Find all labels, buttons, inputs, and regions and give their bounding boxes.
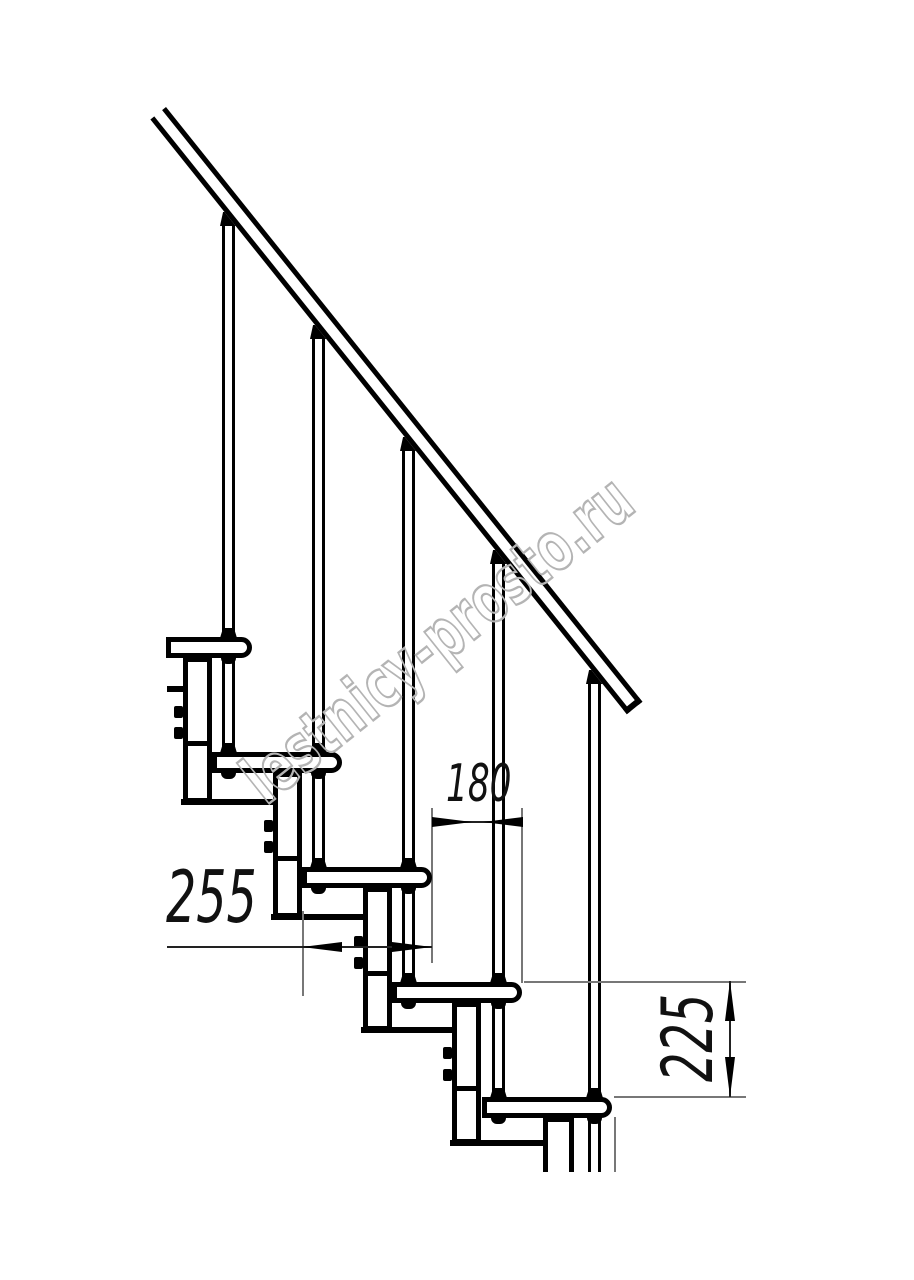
ext-line-255-left (302, 911, 304, 996)
ext-line-180-right (521, 808, 523, 983)
baluster-1-lower (222, 657, 235, 752)
tread-1-cutoff (166, 637, 252, 658)
module-1-flange (181, 799, 275, 805)
module-4-flange (450, 1140, 545, 1146)
baluster-5-lower (588, 1117, 601, 1172)
baluster-3-lower (402, 887, 415, 982)
module-3-flange (361, 1027, 454, 1033)
baluster-2-upper (312, 335, 325, 752)
tread-2 (212, 752, 342, 773)
dim-180-arrow-right (483, 817, 523, 827)
module-1-seam (183, 741, 212, 746)
module-3-seam (363, 971, 392, 976)
stringer-module-4 (452, 1002, 481, 1144)
tread-2-nut-a (221, 771, 236, 779)
tread-5 (482, 1097, 612, 1118)
module-2-flange (271, 914, 365, 920)
module-0-flange-cutoff (167, 686, 183, 692)
dim-value-225: 225 (648, 994, 729, 1082)
module-4-seam (452, 1086, 481, 1091)
tread-4-nut-a (401, 1001, 416, 1009)
tread-4 (392, 982, 522, 1003)
baluster-3-upper (402, 447, 415, 867)
stringer-module-5-cutoff (543, 1117, 574, 1172)
ext-line-255-180-shared (431, 808, 433, 963)
stringer-module-2 (273, 772, 302, 918)
module-1-bolt-upper (174, 706, 183, 718)
module-3-bolt-lower (354, 957, 363, 969)
dim-value-180: 180 (446, 755, 512, 815)
tread-5-nut-a (491, 1116, 506, 1124)
staircase-drawing: 255 180 225 lestnicy-prosto.ru (0, 0, 914, 1280)
module-2-bolt-upper (264, 820, 273, 832)
tread-3-nut-a (311, 886, 326, 894)
module-2-seam (273, 856, 302, 861)
ext-line-225-top (524, 981, 746, 983)
dim-value-255: 255 (166, 856, 257, 939)
module-4-bolt-lower (443, 1069, 452, 1081)
dim-255-arrow-left (302, 942, 342, 952)
baluster-5-upper (588, 680, 601, 1097)
baluster-2-lower (312, 772, 325, 867)
baluster-4-lower (492, 1002, 505, 1097)
baluster-1-upper (222, 222, 235, 637)
tread-3 (302, 867, 432, 888)
module-4-bolt-upper (443, 1047, 452, 1059)
nose-projection-line (614, 1117, 616, 1172)
stringer-module-3 (363, 887, 392, 1031)
dim-180-arrow-left (432, 817, 472, 827)
dim-255-arrow-right (392, 942, 432, 952)
module-1-bolt-lower (174, 727, 183, 739)
module-2-bolt-lower (264, 841, 273, 853)
stringer-module-1 (183, 657, 212, 803)
